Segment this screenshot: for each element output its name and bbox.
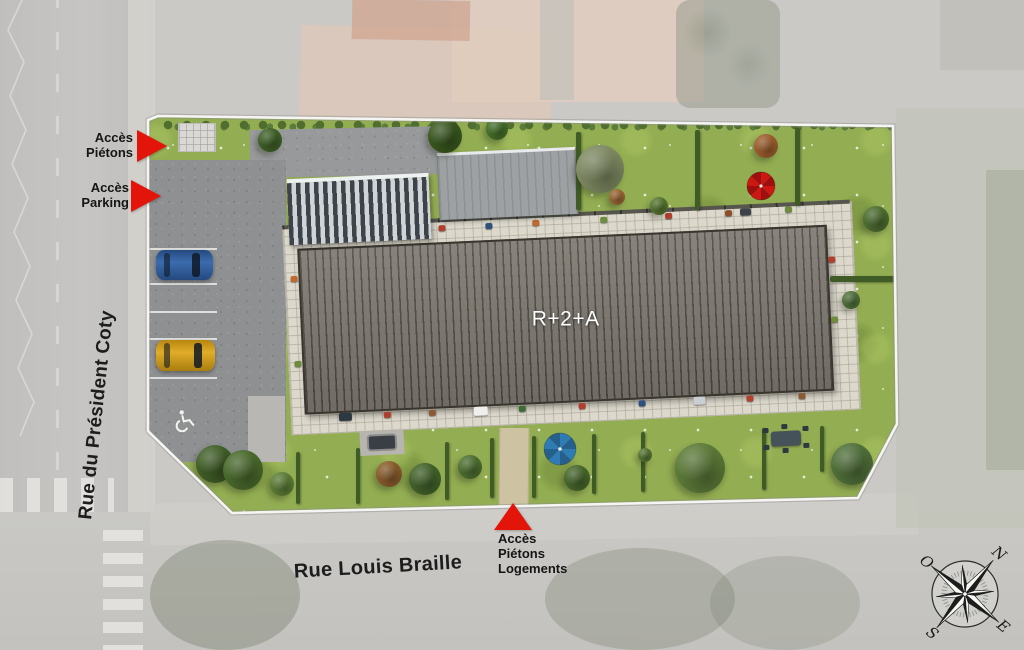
garden-hedge (296, 452, 300, 504)
planter (579, 403, 586, 409)
parking-stall-line (149, 283, 217, 285)
aerial-hedge-east (986, 170, 1024, 470)
aerial-trees (676, 0, 780, 108)
tree (675, 443, 725, 493)
planter (831, 316, 838, 322)
tree (223, 450, 263, 490)
garden-hedge (532, 436, 536, 498)
planter (725, 210, 732, 216)
tree (609, 189, 625, 205)
planter (429, 410, 436, 416)
access-parking-arrow-icon (131, 180, 161, 212)
tree (270, 472, 294, 496)
planter (294, 361, 301, 367)
planter (600, 217, 607, 223)
garden-hedge (356, 448, 360, 504)
planter (798, 393, 805, 399)
lane-dash-marking (56, 0, 59, 470)
garden-hedge (641, 432, 645, 492)
tree (638, 448, 652, 462)
garden-hedge (795, 128, 800, 206)
planter (665, 213, 672, 219)
compass-letter-west: O (916, 551, 937, 573)
aerial-neighbor-roof (940, 0, 1024, 70)
tree (409, 463, 441, 495)
planter (485, 223, 492, 229)
planter (290, 276, 297, 282)
terrace-furniture (740, 208, 751, 215)
planter (438, 225, 445, 231)
compass-rose: N E S O (903, 537, 1024, 650)
tree (650, 197, 668, 215)
tree (258, 128, 282, 152)
building-label: R+2+A (532, 308, 600, 332)
planter (384, 412, 391, 418)
access-pedestrian-label: Accès Piétons (56, 131, 133, 161)
planter (532, 220, 539, 226)
aerial-neighbor-roof (452, 0, 704, 102)
site-plan-canvas: R+2+A (0, 0, 1024, 650)
tree (576, 145, 624, 193)
tree (486, 118, 508, 140)
building-label-box: R+2+A (297, 225, 834, 415)
planter (746, 395, 753, 401)
garden-hedge (490, 438, 494, 498)
pergola-carport-roof (287, 173, 432, 245)
access-housing-arrow-icon (494, 503, 532, 530)
garden-hedge (820, 426, 824, 472)
garden-hedge (445, 442, 449, 500)
tree (831, 443, 873, 485)
planter (638, 400, 645, 406)
blue-umbrella-icon (543, 432, 577, 466)
garden-patio (359, 430, 404, 456)
compass-letter-east: E (993, 615, 1014, 637)
annex-wing-roof (437, 147, 579, 220)
tree (754, 134, 778, 158)
outdoor-dining-set (761, 423, 811, 455)
tree (376, 461, 402, 487)
tree (428, 119, 462, 153)
planter (785, 206, 792, 212)
aerial-tree-shadow (710, 556, 860, 650)
access-parking-label: Accès Parking (52, 181, 129, 211)
planter (828, 256, 835, 262)
garden-table (369, 435, 396, 449)
garden-hedge (592, 434, 596, 494)
road-zigzag-marking (2, 0, 36, 450)
car-blue (156, 250, 213, 280)
tree (564, 465, 590, 491)
parking-lot (148, 160, 286, 462)
compass-letter-north: N (987, 542, 1010, 565)
handicap-parking-icon (170, 408, 196, 434)
access-pedestrian-arrow-icon (137, 130, 167, 162)
aerial-courtyard (540, 0, 574, 100)
parking-stall-line (149, 377, 217, 379)
terrace-furniture (339, 412, 352, 421)
planter (519, 406, 526, 412)
garden-hedge (695, 130, 700, 210)
garden-path (499, 428, 530, 506)
garden-hedge (830, 276, 896, 282)
terrace-furniture (693, 396, 705, 405)
terrace-table-white (474, 406, 488, 416)
crosswalk-south (103, 530, 143, 650)
aerial-neighbor-roof (352, 0, 471, 41)
red-umbrella-icon (746, 171, 776, 201)
aerial-tree-shadow (150, 540, 300, 650)
parking-stall-line (149, 311, 217, 313)
compass-letter-south: S (922, 623, 941, 643)
tree (842, 291, 860, 309)
tree (458, 455, 482, 479)
pedestrian-entry-pad (178, 123, 216, 152)
car-yellow (156, 340, 215, 371)
access-housing-label: Accès Piétons Logements (498, 532, 598, 577)
tree (863, 206, 889, 232)
